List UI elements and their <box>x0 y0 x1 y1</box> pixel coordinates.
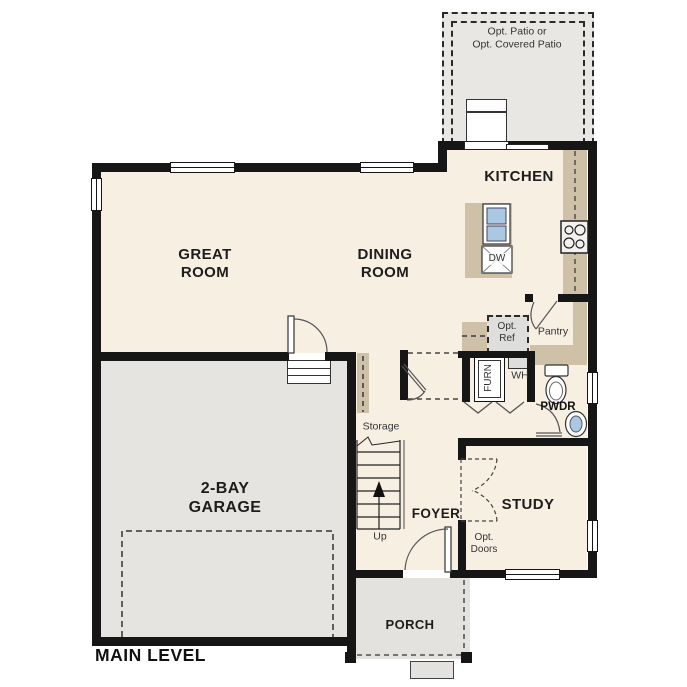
pantry-label: Pantry <box>538 326 568 339</box>
stairs-up-run <box>357 437 404 529</box>
optional-study-doors-dashed <box>461 459 497 521</box>
bifold-doors-furnace-closet <box>464 402 524 413</box>
water-heater-label: WH <box>511 370 529 383</box>
toilet-fixture <box>545 365 568 404</box>
door-hall-swing <box>402 364 426 400</box>
stairs-up-label: Up <box>373 531 386 544</box>
foyer-label: FOYER <box>412 506 461 522</box>
storage-label: Storage <box>363 421 400 434</box>
main-level-title: MAIN LEVEL <box>95 645 206 666</box>
floor-plan: Opt. Patio or Opt. Covered Patio KITCHEN… <box>0 0 687 687</box>
optional-refrigerator-label: Opt. Ref <box>498 321 517 345</box>
study-label: STUDY <box>502 496 555 514</box>
patio-label-line1: Opt. Patio or <box>488 25 547 37</box>
hall-open-passage-dashes <box>363 336 487 412</box>
garage-door-dashed-outline <box>122 531 333 637</box>
island-sink-fixture <box>483 204 510 244</box>
door-front-entry <box>405 527 451 572</box>
powder-room-label: PWDR <box>540 401 575 413</box>
kitchen-label: KITCHEN <box>484 168 553 186</box>
dishwasher-label: DW <box>488 253 507 265</box>
optional-doors-label: Opt. Doors <box>471 532 498 556</box>
door-garage-to-great-room <box>288 316 327 353</box>
plan-symbol-overlay <box>0 0 687 687</box>
powder-sink-fixture <box>566 412 587 437</box>
patio-label: Opt. Patio or Opt. Covered Patio <box>472 25 561 50</box>
great-room-label: GREAT ROOM <box>178 246 231 282</box>
patio-label-line2: Opt. Covered Patio <box>472 38 561 50</box>
porch-label: PORCH <box>386 617 435 633</box>
dining-room-label: DINING ROOM <box>358 246 413 282</box>
furnace-label: FURN <box>483 364 495 392</box>
garage-label: 2-BAY GARAGE <box>189 479 262 517</box>
stairs-up-arrowhead <box>373 481 385 497</box>
cooktop-fixture <box>561 221 588 253</box>
